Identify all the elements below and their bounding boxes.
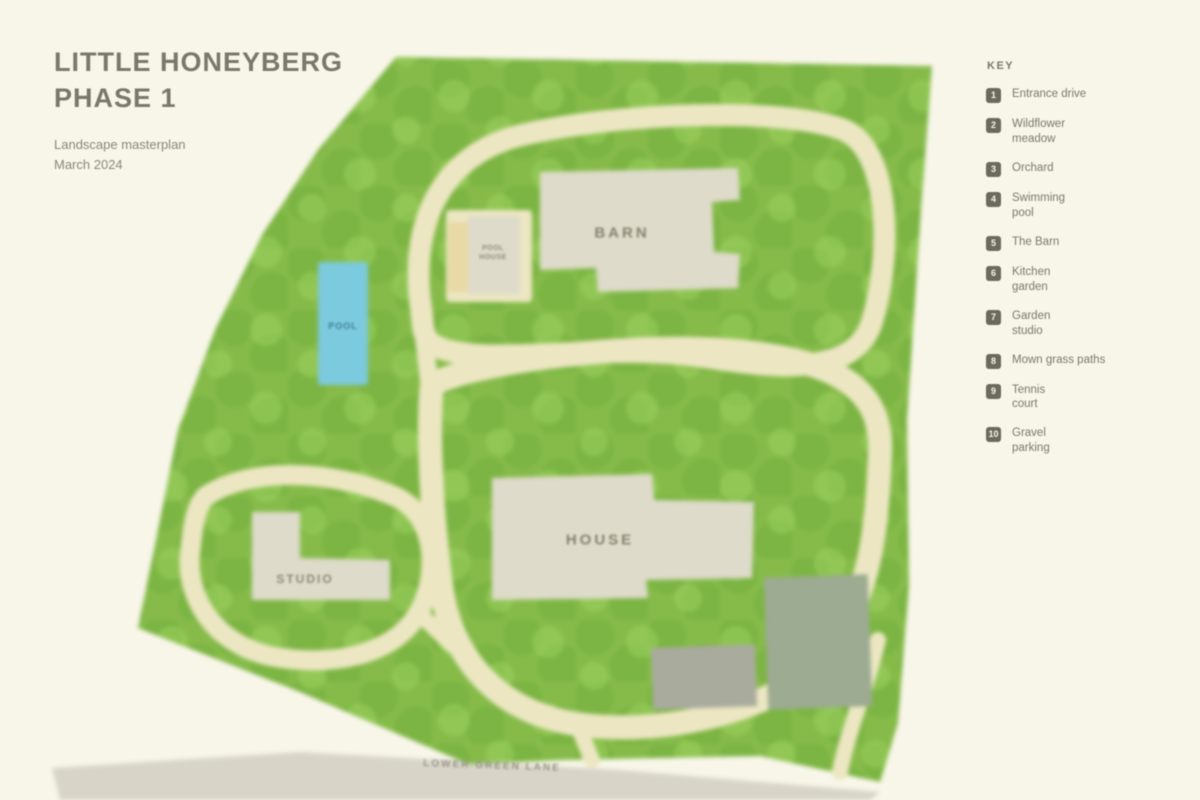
legend-number-chip: 8 — [986, 354, 1001, 369]
legend-item: 3 Orchard — [986, 161, 1186, 177]
legend-number-chip: 5 — [986, 236, 1001, 251]
legend-item: 2 Wildflower meadow — [986, 117, 1186, 147]
legend-item-label: Entrance drive — [1012, 87, 1086, 102]
plan-subtitle-line2: March 2024 — [54, 155, 343, 175]
legend-item: 8 Mown grass paths — [986, 353, 1186, 369]
legend-item-label: Wildflower meadow — [1012, 117, 1065, 147]
plan-subtitle: Landscape masterplan March 2024 — [54, 135, 343, 175]
legend-item-label: Kitchen garden — [1012, 265, 1050, 295]
legend-item: 6 Kitchen garden — [986, 265, 1186, 295]
legend-number-chip: 6 — [986, 266, 1001, 281]
legend-number-chip: 1 — [986, 88, 1001, 103]
legend-item: 10 Gravel parking — [986, 426, 1186, 456]
legend-number-chip: 2 — [986, 118, 1001, 133]
legend-item: 7 Garden studio — [986, 309, 1186, 339]
pool-deck-strip — [448, 222, 468, 292]
legend-item-label: Garden studio — [1012, 309, 1050, 339]
title-block: LITTLE HONEYBERG PHASE 1 Landscape maste… — [54, 44, 343, 175]
gravel-parking-area — [651, 644, 757, 710]
legend-number-chip: 9 — [986, 384, 1001, 399]
legend-item: 4 Swimming pool — [986, 191, 1186, 221]
legend-heading: KEY — [987, 60, 1186, 72]
plan-title-line2: PHASE 1 — [54, 80, 343, 116]
legend: KEY 1 Entrance drive 2 Wildflower meadow… — [986, 60, 1186, 470]
legend-item: 1 Entrance drive — [986, 87, 1186, 103]
plan-title-line1: LITTLE HONEYBERG — [54, 44, 343, 80]
legend-item-label: Mown grass paths — [1012, 353, 1105, 368]
legend-item: 9 Tennis court — [986, 383, 1186, 413]
legend-item-label: Gravel parking — [1012, 426, 1050, 456]
legend-number-chip: 7 — [986, 310, 1001, 325]
tennis-court — [764, 574, 873, 710]
site-plan-canvas: BARN HOUSE STUDIO POOL POOL HOUSE LOWER … — [0, 0, 1200, 800]
legend-item-label: The Barn — [1012, 235, 1059, 250]
legend-item-label: Swimming pool — [1012, 191, 1065, 221]
pool-house-building — [468, 216, 520, 294]
legend-number-chip: 3 — [986, 162, 1001, 177]
legend-number-chip: 4 — [986, 192, 1001, 207]
legend-item-label: Orchard — [1012, 161, 1054, 176]
legend-item: 5 The Barn — [986, 235, 1186, 251]
legend-item-label: Tennis court — [1012, 383, 1045, 413]
legend-number-chip: 10 — [986, 427, 1001, 442]
path-connector-pool — [421, 310, 430, 390]
swimming-pool — [318, 262, 368, 385]
plan-subtitle-line1: Landscape masterplan — [54, 135, 343, 155]
